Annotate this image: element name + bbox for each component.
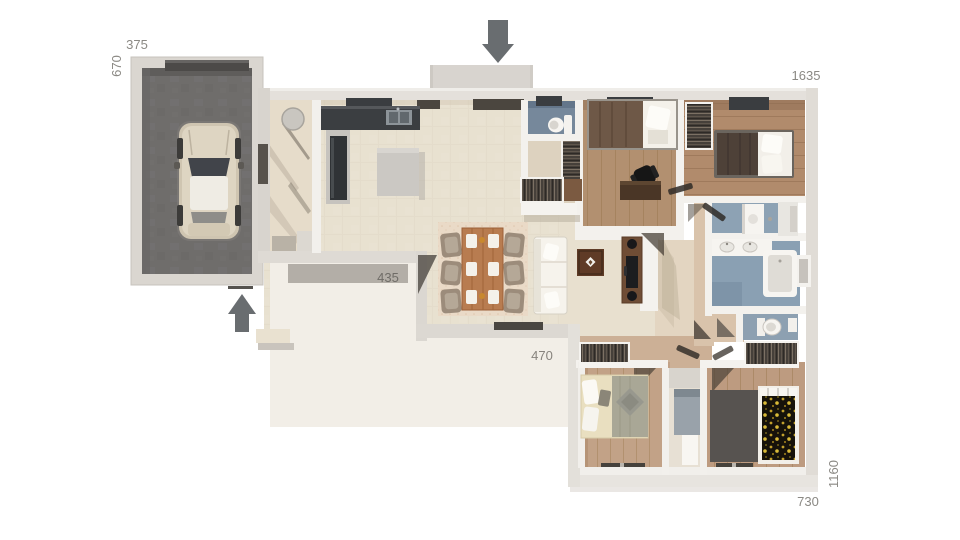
svg-text:670: 670: [109, 55, 124, 77]
svg-text:375: 375: [126, 37, 148, 52]
svg-text:1160: 1160: [826, 460, 841, 488]
svg-text:435: 435: [377, 270, 399, 285]
svg-text:1635: 1635: [792, 68, 821, 83]
svg-text:730: 730: [797, 494, 819, 509]
svg-text:470: 470: [531, 348, 553, 363]
